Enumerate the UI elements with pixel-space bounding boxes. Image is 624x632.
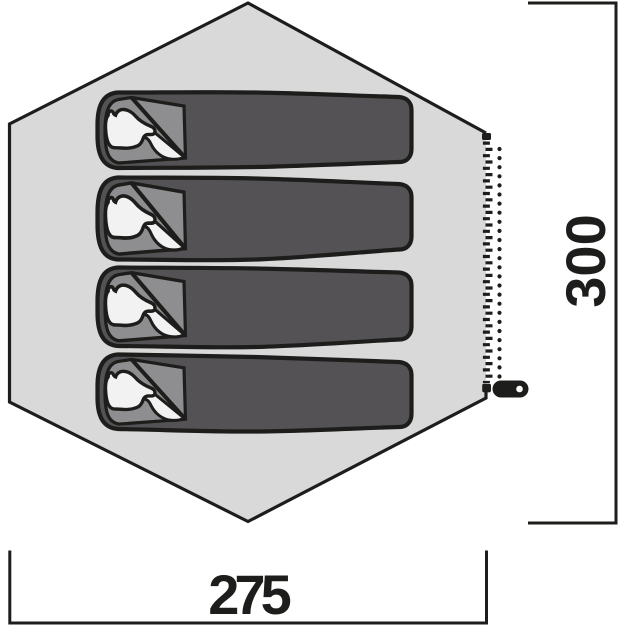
- svg-text:275: 275: [208, 563, 290, 626]
- svg-text:300: 300: [554, 214, 617, 307]
